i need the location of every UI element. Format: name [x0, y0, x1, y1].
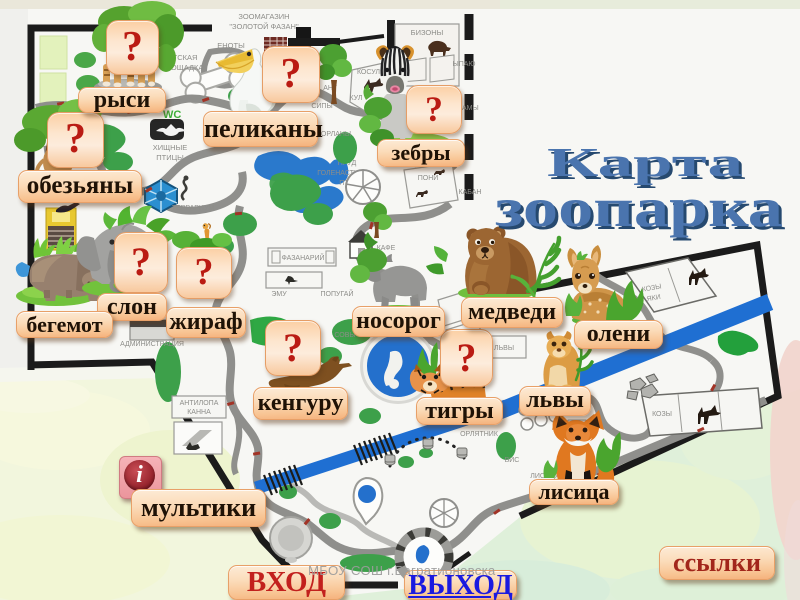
svg-text:ТЕРРАРИУМ: ТЕРРАРИУМ [172, 205, 215, 212]
svg-text:ОРЛЯТНИК: ОРЛЯТНИК [460, 431, 499, 438]
svg-text:СИПЫ: СИПЫ [311, 103, 332, 110]
svg-text:КАННА: КАННА [187, 409, 211, 416]
svg-text:АДМИНИСТРАЦИЯ: АДМИНИСТРАЦИЯ [120, 341, 184, 348]
svg-text:"ЗОЛОТОЙ ФАЗАН": "ЗОЛОТОЙ ФАЗАН" [229, 22, 299, 31]
svg-text:КОЗЫ: КОЗЫ [652, 411, 672, 418]
svg-text:ПТИЦЫ: ПТИЦЫ [156, 153, 184, 162]
svg-text:зоопарка: зоопарка [495, 177, 783, 238]
svg-text:АНТИЛОПА: АНТИЛОПА [180, 400, 219, 407]
svg-text:ЛЬВЫ: ЛЬВЫ [494, 345, 514, 352]
svg-text:ЕНОТЫ: ЕНОТЫ [217, 41, 245, 50]
svg-text:КАБАН: КАБАН [459, 189, 482, 196]
svg-text:СОВЫ: СОВЫ [334, 332, 355, 339]
svg-text:ПОПУГАЙ: ПОПУГАЙ [321, 289, 354, 298]
svg-text:WC: WC [163, 109, 181, 121]
svg-text:КУЛ: КУЛ [350, 95, 363, 102]
svg-text:ЛЕТ: ЛЕТ [168, 99, 182, 106]
svg-text:ЗООМАГАЗИН: ЗООМАГАЗИН [238, 12, 289, 21]
svg-text:ВИС: ВИС [505, 457, 520, 464]
svg-text:ЫПАЮ: ЫПАЮ [453, 61, 476, 68]
svg-text:ФАЗАНАРИЙ: ФАЗАНАРИЙ [281, 253, 324, 262]
svg-text:ЭМУ: ЭМУ [271, 291, 287, 298]
svg-text:ОРЛАНЫ: ОРЛАНЫ [321, 131, 351, 138]
svg-text:ХИЩНЫЕ: ХИЩНЫЕ [153, 143, 187, 152]
svg-text:ПОНИ: ПОНИ [418, 175, 439, 182]
svg-text:БИЗОНЫ: БИЗОНЫ [411, 28, 444, 37]
